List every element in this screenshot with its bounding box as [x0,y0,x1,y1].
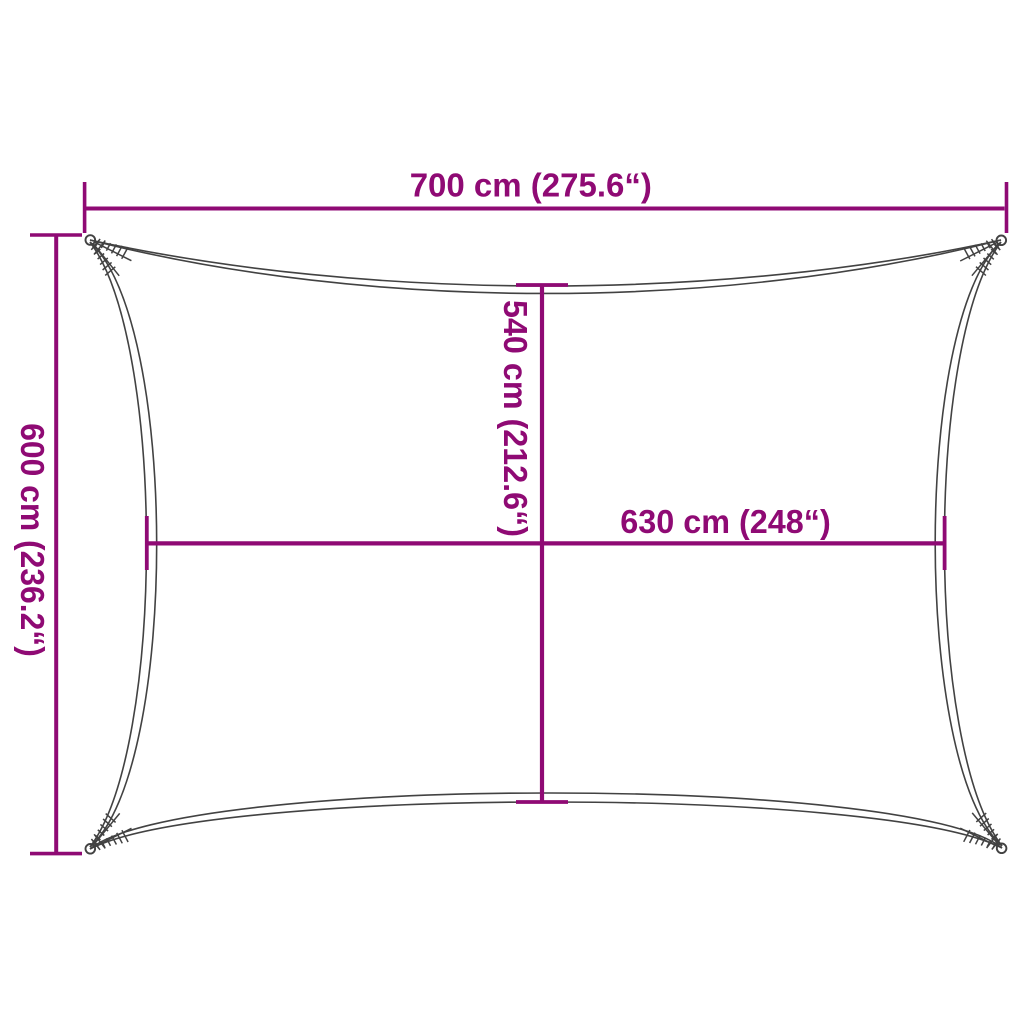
svg-text:540 cm (212.6“): 540 cm (212.6“) [496,300,533,537]
svg-text:630 cm (248“): 630 cm (248“) [620,504,831,541]
svg-text:700 cm (275.6“): 700 cm (275.6“) [410,168,652,205]
svg-text:600 cm (236.2“): 600 cm (236.2“) [13,423,50,657]
